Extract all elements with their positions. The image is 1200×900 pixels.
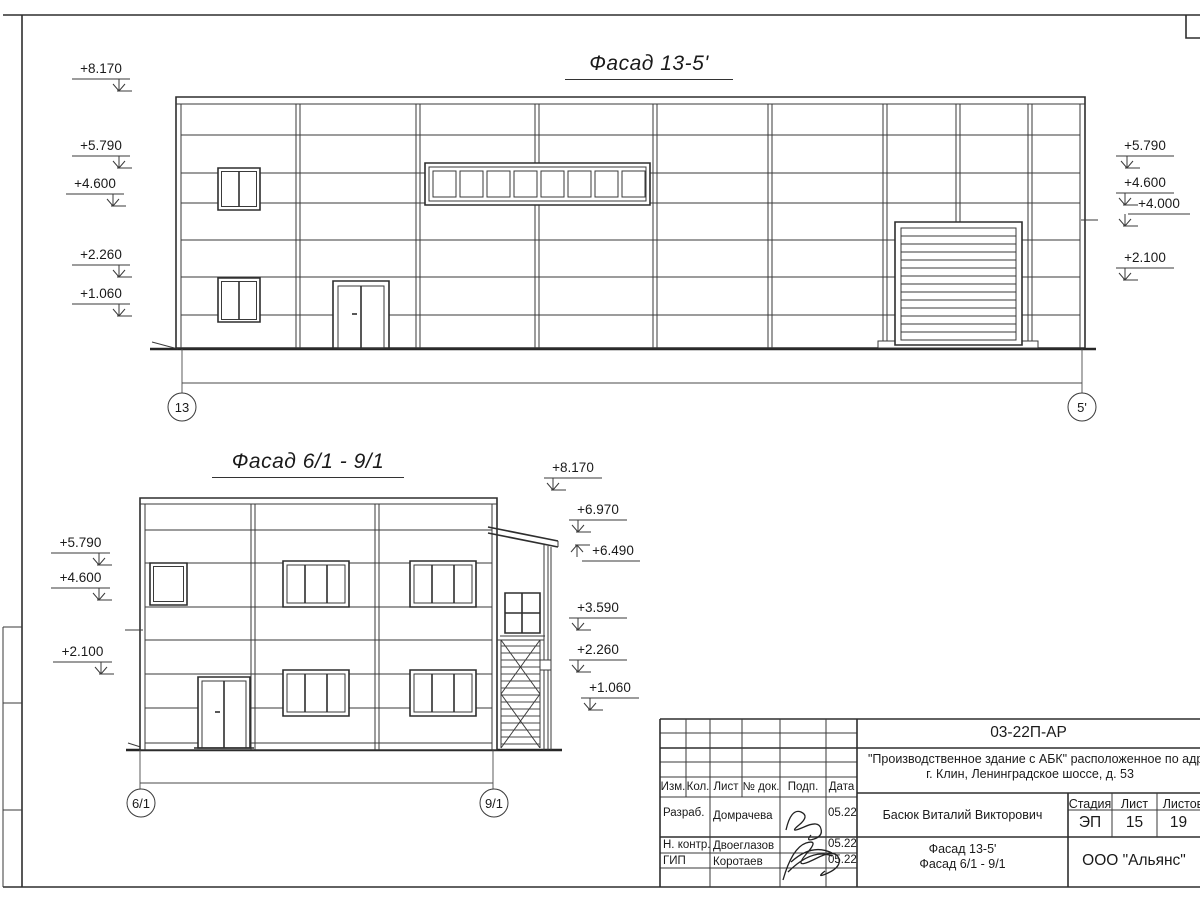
axis-leaders [168,349,1096,421]
tb-project-line2: г. Клин, Ленинградское шоссе, д. 53 [860,767,1200,781]
elevation-label: +4.600 [66,176,124,191]
elevation-label: +5.790 [51,535,110,550]
tb-sheet-value: 15 [1112,814,1157,832]
elevation-label: +3.590 [569,600,627,615]
tb-sheets-value: 19 [1157,814,1200,832]
elevation-label: +6.970 [569,502,627,517]
tb-sheets-label: Листов [1157,797,1200,811]
sectional-gate [878,222,1038,348]
elevation-label: +8.170 [72,61,130,76]
tb-signer-name: Двоеглазов [713,840,774,852]
elevation-label: +2.100 [53,644,112,659]
axis-bubble: 6/1 [127,796,155,811]
tb-signer-date: 05.22 [828,807,857,819]
window [283,561,349,607]
tb-signer-date: 05.22 [828,854,857,866]
tb-sheet-label: Лист [1112,797,1157,811]
axis-leaders [127,750,508,817]
entrance-door [194,677,254,748]
tb-project-line1: "Производственное здание с АБК" располож… [868,752,1200,766]
tb-col-kol: Кол. [686,781,710,793]
axis-bubble: 5' [1068,400,1096,415]
window [410,561,476,607]
elevation-label: +1.060 [581,680,639,695]
signature [786,811,821,840]
axis-bubble: 13 [168,400,196,415]
tb-col-list: Лист [710,781,742,793]
elevation-label: +5.790 [72,138,130,153]
tb-signer-date: 05.22 [828,838,857,850]
tb-stage-label: Стадия [1068,797,1112,811]
facade1-drawing [150,97,1098,421]
elevation-label: +8.170 [544,460,602,475]
ribbon-window [425,163,650,205]
elevation-label: +1.060 [72,286,130,301]
elevation-label: +6.490 [584,543,642,558]
tb-signer-role: Разраб. [663,807,704,819]
tb-signer-role: Н. контр. [663,839,710,851]
tb-signer-name: Коротаев [713,856,763,868]
tb-col-izm: Изм. [660,781,686,793]
tb-approver: Басюк Виталий Викторович [857,808,1068,822]
tb-company: ООО "Альянс" [1068,852,1200,870]
elevation-label: +2.260 [72,247,130,262]
tb-doc-code: 03-22П-АР [857,724,1200,742]
window [410,670,476,716]
tb-drawing-title1: Фасад 13-5' [857,842,1068,856]
window [150,563,187,605]
facade2-drawing [125,498,562,817]
elevation-label: +4.600 [51,570,110,585]
elevation-label: +2.100 [1116,250,1174,265]
elevation-label: +4.000 [1128,196,1190,211]
tb-col-podp: Подп. [780,781,826,793]
elevation-label: +2.260 [569,642,627,657]
window [218,278,260,322]
tb-col-data: Дата [826,781,857,793]
tb-col-doc: № док. [742,781,780,793]
elevation-label: +5.790 [1116,138,1174,153]
stair-tower [488,527,558,750]
elevation-label: +4.600 [1116,175,1174,190]
stair-flight [501,640,540,748]
corner-stamp-box [1186,15,1200,38]
tb-signer-role: ГИП [663,855,686,867]
entrance-door [333,281,389,348]
window [283,670,349,716]
tb-drawing-title2: Фасад 6/1 - 9/1 [857,857,1068,871]
facade2-title: Фасад 6/1 - 9/1 [212,450,404,478]
window [218,168,260,210]
tb-stage-value: ЭП [1068,814,1112,832]
drawing-sheet: Фасад 13-5' Фасад 6/1 - 9/1 +8.170 +5.79… [0,0,1200,900]
tb-signer-name: Домрачева [713,810,773,822]
facade1-title: Фасад 13-5' [565,52,733,80]
axis-bubble: 9/1 [480,796,508,811]
